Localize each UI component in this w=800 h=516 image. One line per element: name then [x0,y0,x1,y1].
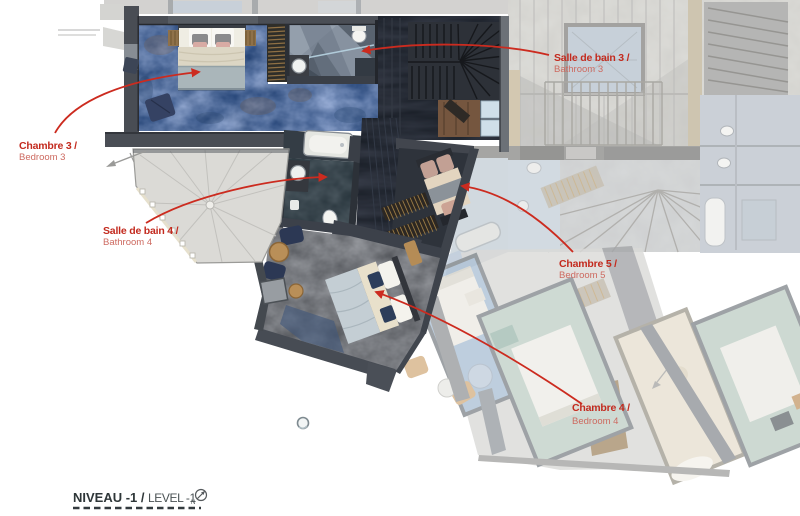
svg-text:Bedroom 5: Bedroom 5 [559,270,605,281]
svg-text:LEVEL -1: LEVEL -1 [148,491,196,505]
svg-text:Bathroom 4: Bathroom 4 [103,237,152,248]
svg-text:Chambre 4 /: Chambre 4 / [572,402,630,414]
svg-text:Bedroom 4: Bedroom 4 [572,416,618,427]
svg-text:N: N [191,500,195,506]
svg-text:Bathroom 3: Bathroom 3 [554,64,603,75]
svg-text:Bedroom 3: Bedroom 3 [19,152,65,163]
svg-text:Chambre 5 /: Chambre 5 / [559,258,617,270]
svg-text:NIVEAU -1 /: NIVEAU -1 / [73,490,145,505]
svg-text:Salle de bain 3 /: Salle de bain 3 / [554,52,630,64]
svg-text:Chambre 3 /: Chambre 3 / [19,140,77,152]
svg-text:Salle de bain 4 /: Salle de bain 4 / [103,225,179,237]
